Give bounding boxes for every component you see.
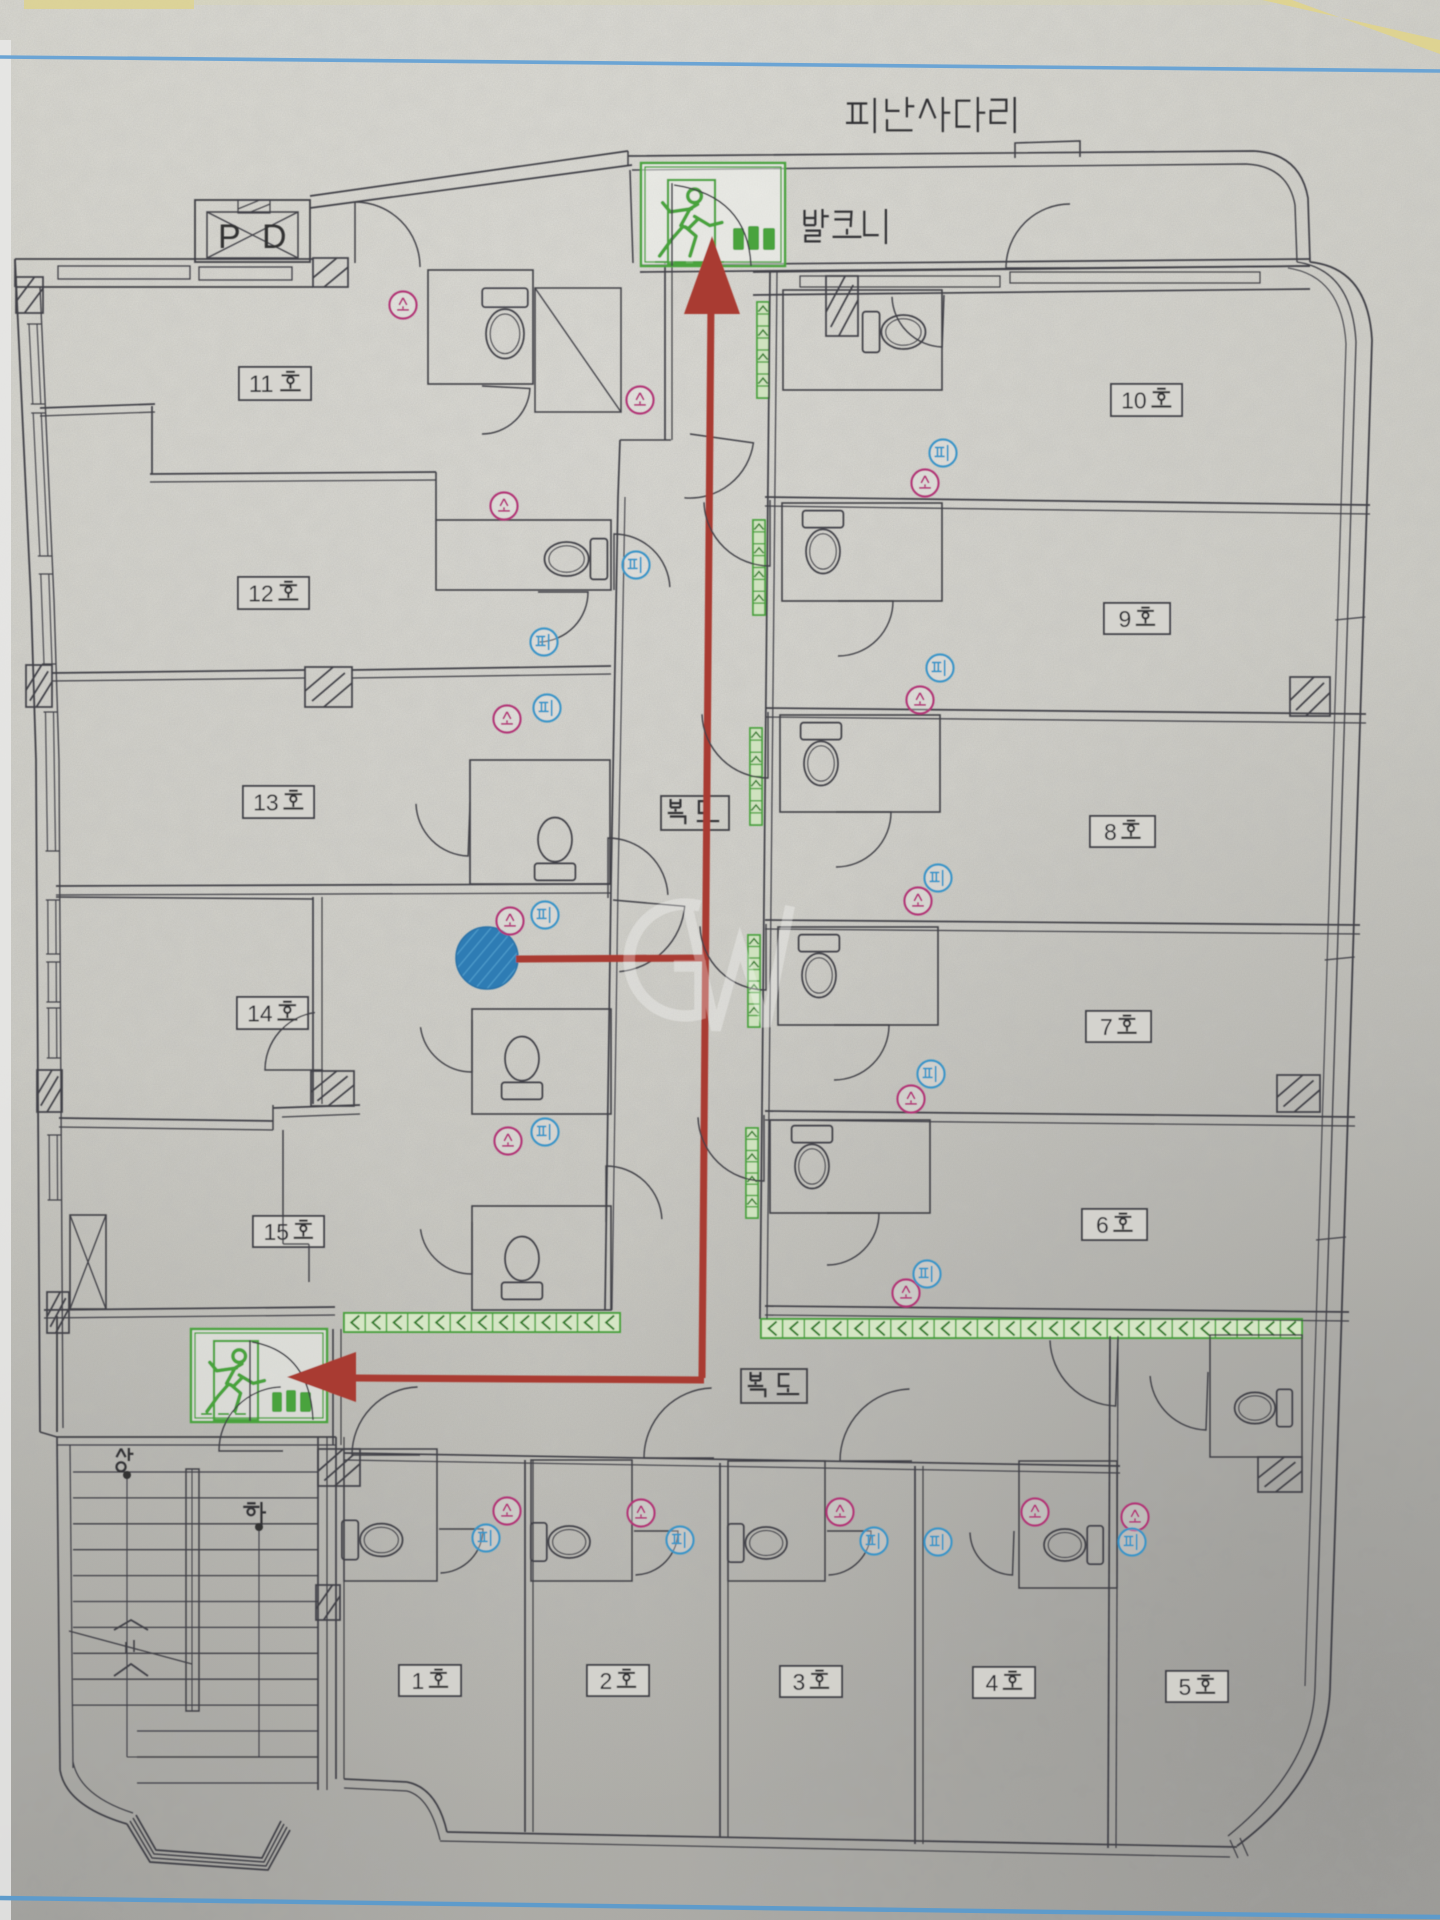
svg-text:14: 14	[247, 1000, 273, 1026]
svg-text:5: 5	[1178, 1674, 1191, 1700]
svg-text:D: D	[262, 218, 287, 256]
svg-text:7: 7	[1100, 1014, 1113, 1040]
svg-text:3: 3	[792, 1669, 805, 1695]
svg-text:P: P	[218, 218, 241, 256]
svg-text:9: 9	[1118, 606, 1131, 632]
svg-text:6: 6	[1096, 1212, 1109, 1238]
svg-text:2: 2	[599, 1668, 612, 1694]
svg-text:4: 4	[985, 1670, 998, 1696]
svg-text:11: 11	[249, 371, 274, 398]
svg-text:15: 15	[264, 1219, 290, 1245]
svg-text:13: 13	[253, 789, 279, 815]
svg-text:1: 1	[411, 1668, 424, 1694]
svg-text:8: 8	[1104, 819, 1117, 845]
svg-text:12: 12	[248, 580, 274, 606]
svg-text:10: 10	[1121, 387, 1147, 413]
